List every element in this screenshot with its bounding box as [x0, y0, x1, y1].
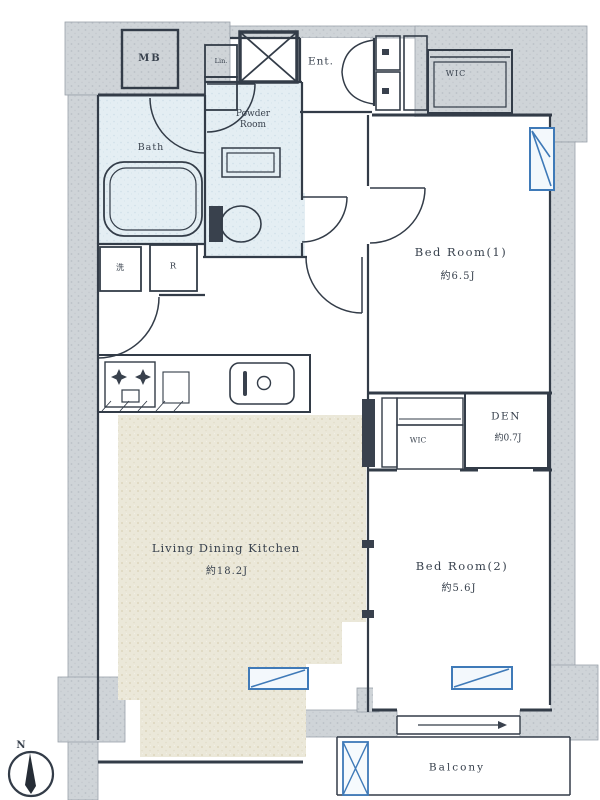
sink: [230, 363, 294, 404]
label-balcony: Balcony: [429, 761, 485, 774]
compass-needle-icon: [25, 753, 36, 794]
label-den: DEN: [491, 410, 521, 423]
closet: [397, 398, 463, 425]
stove: [105, 362, 155, 407]
label-mb: MB: [138, 53, 162, 66]
arrow-icon: [498, 721, 507, 729]
shaft-x: [240, 32, 297, 82]
label-linen: Lin.: [215, 57, 228, 65]
balcony-partition: [343, 742, 368, 795]
kitchen-counter: [98, 355, 310, 412]
burner-icon: [135, 369, 151, 385]
label-wic-upper: WIC: [446, 69, 467, 79]
label-bedroom1: Bed Room(1): [415, 245, 507, 259]
label-bath: Bath: [138, 142, 165, 154]
pipe-space: [362, 399, 375, 467]
burner-icon: [111, 369, 127, 385]
label-powder-room: Powder Room: [224, 109, 282, 132]
floor-plan-drawing: [0, 0, 600, 800]
compass: [9, 752, 53, 796]
label-den-size: 約0.7J: [495, 433, 522, 444]
label-bedroom2-size: 約5.6J: [442, 583, 477, 596]
label-washer: 洗: [116, 263, 124, 273]
sliding-door: [397, 716, 520, 734]
label-ldk-size: 約18.2J: [206, 566, 248, 579]
label-wic-mid: WIC: [410, 435, 426, 444]
label-bedroom2: Bed Room(2): [416, 559, 508, 573]
den-room: [465, 393, 548, 468]
label-fridge: R: [170, 262, 176, 273]
label-ldk: Living Dining Kitchen: [152, 541, 300, 555]
faucet-icon: [243, 371, 247, 396]
label-compass-north: N: [16, 740, 25, 753]
wic-mid-closet: [397, 425, 463, 469]
label-entrance: Ent.: [308, 55, 334, 68]
floor-plan: MB Lin. Ent. WIC Powder Room Bath Bed Ro…: [0, 0, 600, 800]
label-bedroom1-size: 約6.5J: [441, 271, 476, 284]
